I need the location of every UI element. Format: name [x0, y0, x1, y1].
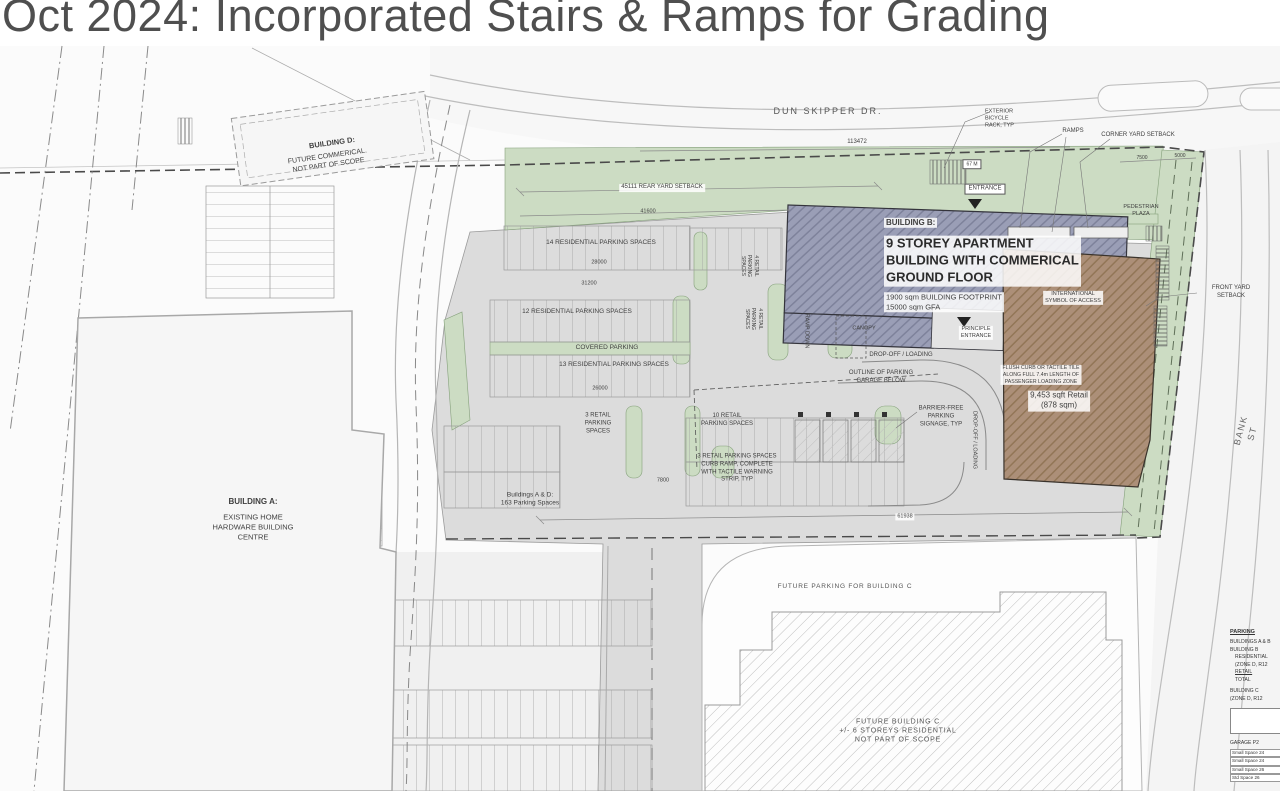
- site-plan-page: Oct 2024: Incorporated Stairs & Ramps fo…: [0, 0, 1280, 791]
- site-plan-canvas: [0, 0, 1280, 791]
- page-title: Oct 2024: Incorporated Stairs & Ramps fo…: [2, 0, 1272, 39]
- legend-line: RESIDENTIAL: [1235, 654, 1280, 662]
- legend-garage-row: Small Space 24: [1230, 757, 1280, 765]
- legend-line: (ZONE D, R12: [1235, 662, 1280, 670]
- legend-heading: PARKING: [1230, 628, 1280, 636]
- retail-building-outline: [1003, 249, 1160, 487]
- legend-garage-row: Std Space 26: [1230, 774, 1280, 782]
- legend-garage-row: Small Space 26: [1230, 766, 1280, 774]
- legend-line: BUILDING C: [1230, 688, 1280, 696]
- legend-garage-row: Small Space 24: [1230, 749, 1280, 757]
- parking-legend: PARKING BUILDINGS A & B BUILDING B RESID…: [1230, 628, 1280, 782]
- legend-line: BUILDING B: [1230, 647, 1280, 655]
- legend-garage-heading: GARAGE P2: [1230, 740, 1280, 748]
- legend-line: RETAIL: [1235, 669, 1280, 677]
- building-a-outline: [64, 311, 396, 791]
- legend-line: TOTAL: [1235, 677, 1280, 685]
- legend-summary-box: [1230, 708, 1280, 734]
- legend-line: (ZONE D, R12: [1230, 696, 1280, 704]
- legend-line: BUILDINGS A & B: [1230, 639, 1280, 647]
